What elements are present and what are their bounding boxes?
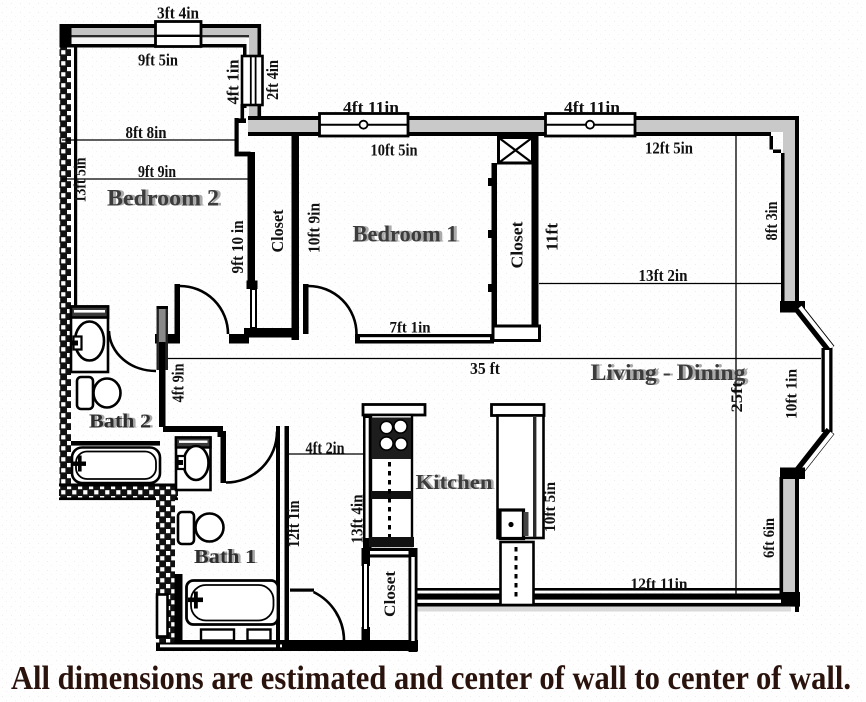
svg-text:2ft 4in: 2ft 4in	[263, 60, 282, 100]
svg-text:8ft 3in: 8ft 3in	[762, 201, 781, 240]
svg-text:Bedroom 1: Bedroom 1	[353, 222, 458, 247]
svg-text:9ft 5in: 9ft 5in	[138, 51, 178, 70]
svg-text:10ft 9in: 10ft 9in	[305, 203, 324, 253]
svg-text:4ft 11in: 4ft 11in	[564, 98, 621, 117]
svg-text:7ft 1in: 7ft 1in	[390, 320, 431, 337]
svg-text:Bath 1: Bath 1	[194, 546, 256, 568]
svg-text:25ft: 25ft	[729, 381, 746, 413]
svg-text:13ft 2in: 13ft 2in	[639, 266, 688, 285]
svg-text:6ft 6in: 6ft 6in	[761, 518, 778, 558]
svg-text:Bath 2: Bath 2	[89, 411, 151, 433]
svg-text:All dimensions are estimated a: All dimensions are estimated and center …	[11, 660, 851, 697]
svg-text:11ft: 11ft	[543, 223, 562, 251]
svg-text:3ft 4in: 3ft 4in	[157, 4, 199, 23]
svg-text:Living - Dining: Living - Dining	[591, 360, 747, 385]
svg-text:4ft 11in: 4ft 11in	[343, 98, 400, 117]
svg-text:12ft 11in: 12ft 11in	[631, 576, 688, 593]
svg-text:Bedroom 2: Bedroom 2	[107, 186, 219, 211]
svg-text:4ft 1in: 4ft 1in	[224, 59, 243, 105]
svg-text:9ft 10 in: 9ft 10 in	[228, 220, 247, 273]
svg-text:10ft 5in: 10ft 5in	[542, 482, 559, 532]
svg-text:9ft 9in: 9ft 9in	[138, 162, 176, 181]
svg-text:10ft 5in: 10ft 5in	[371, 141, 418, 160]
svg-text:4ft 2in: 4ft 2in	[306, 439, 345, 458]
svg-text:Closet: Closet	[268, 209, 287, 252]
svg-text:13ft 5in: 13ft 5in	[71, 157, 90, 202]
svg-text:35 ft: 35 ft	[470, 359, 500, 378]
svg-text:Closet: Closet	[508, 221, 527, 269]
svg-text:10ft 1in: 10ft 1in	[784, 369, 801, 419]
svg-text:12ft 1in: 12ft 1in	[284, 500, 303, 547]
svg-text:13ft 4in: 13ft 4in	[348, 494, 367, 543]
svg-text:Closet: Closet	[382, 570, 399, 617]
svg-text:12ft 5in: 12ft 5in	[645, 139, 693, 158]
svg-text:4ft 9in: 4ft 9in	[169, 363, 188, 402]
svg-text:Kitchen: Kitchen	[416, 470, 493, 494]
svg-text:8ft 8in: 8ft 8in	[126, 123, 167, 142]
